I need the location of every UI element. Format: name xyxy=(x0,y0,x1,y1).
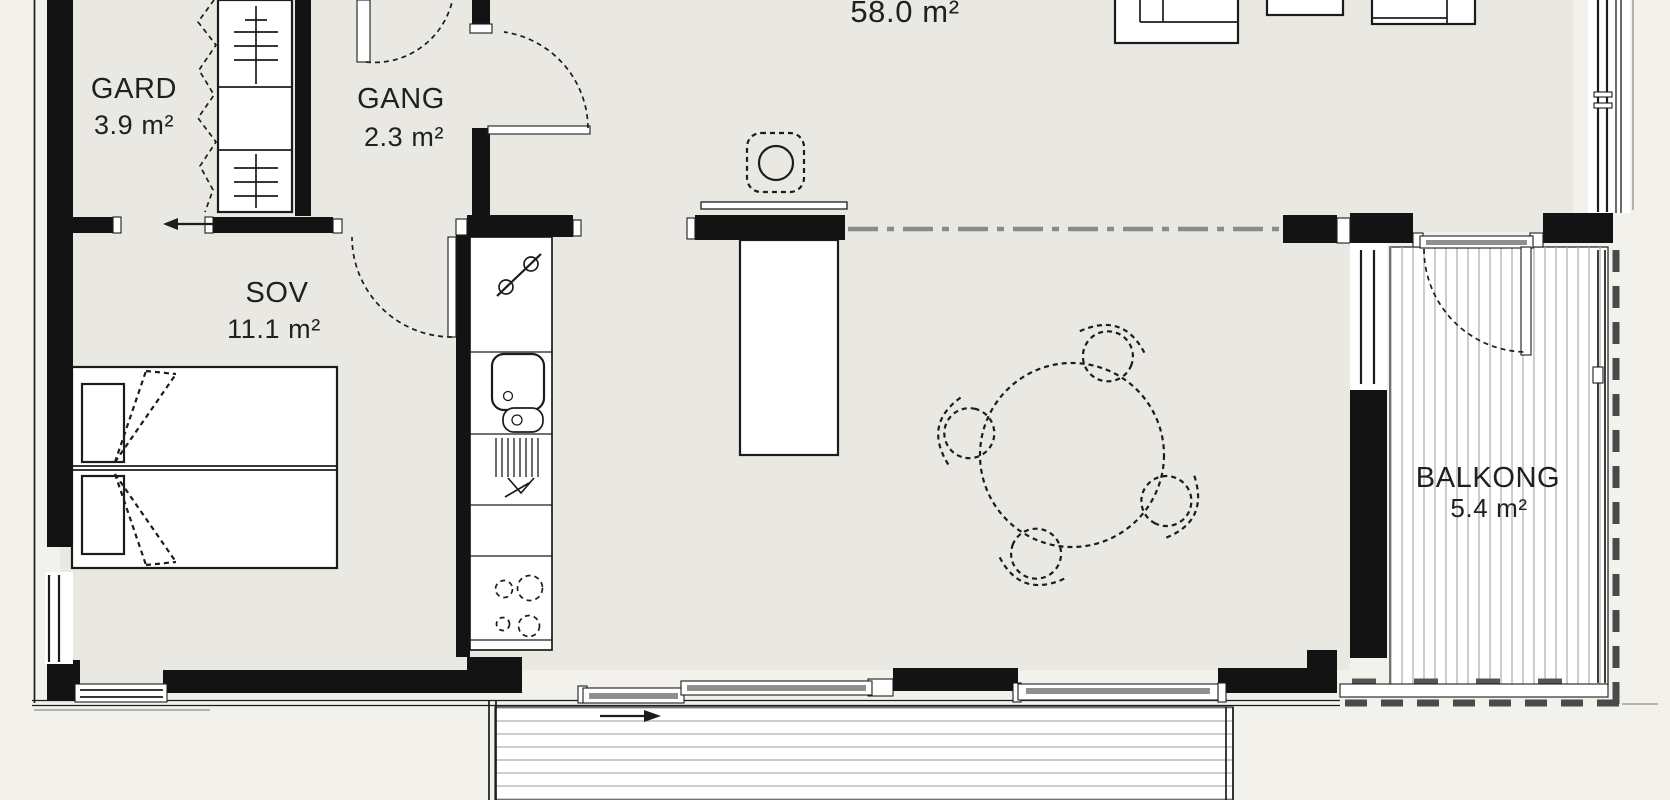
door-leaf xyxy=(448,237,456,337)
floor-plan-canvas: GARD 3.9 m² GANG 2.3 m² SOV 11.1 m² 58.0… xyxy=(0,0,1670,800)
door-jamb xyxy=(470,24,492,33)
balcony-rail-post xyxy=(1593,367,1603,383)
wall xyxy=(1307,650,1337,670)
room-label-sov: SOV xyxy=(245,277,308,309)
room-label-gard: GARD xyxy=(91,73,177,105)
sliding-door-glass xyxy=(589,693,678,699)
wall xyxy=(467,215,573,237)
kitchen-island xyxy=(740,240,838,455)
wall xyxy=(212,217,333,233)
window xyxy=(75,684,167,702)
island-counter-top xyxy=(701,202,847,209)
room-area-sov: 11.1 m² xyxy=(227,314,321,344)
door-jamb xyxy=(113,217,121,233)
armchair xyxy=(1372,0,1475,24)
window-jamb xyxy=(1337,218,1350,243)
wall xyxy=(456,233,470,657)
door-jamb xyxy=(456,219,467,235)
wall xyxy=(1218,668,1337,693)
room-area-balkong: 5.4 m² xyxy=(1450,493,1527,523)
wall xyxy=(295,0,311,216)
room-label-gang: GANG xyxy=(357,83,445,115)
door-jamb xyxy=(687,218,695,239)
balcony-door-glass xyxy=(1426,240,1527,245)
room-area-living: 58.0 m² xyxy=(850,0,959,29)
window xyxy=(1350,243,1387,390)
railing xyxy=(1340,684,1608,697)
pillow xyxy=(82,476,124,554)
room-label-balkong: BALKONG xyxy=(1416,462,1560,494)
wall xyxy=(47,0,73,547)
window xyxy=(1013,683,1226,702)
window xyxy=(45,572,73,664)
wall xyxy=(1350,213,1413,243)
window xyxy=(1588,0,1630,213)
window-mullion xyxy=(1594,103,1612,108)
pillow xyxy=(82,384,124,462)
sliding-door-glass xyxy=(687,685,866,691)
door-leaf xyxy=(357,0,370,62)
floor-plan-drawing: GARD 3.9 m² GANG 2.3 m² SOV 11.1 m² 58.0… xyxy=(0,0,1670,800)
wall xyxy=(893,668,1018,691)
wall xyxy=(47,217,120,233)
door-leaf xyxy=(1521,247,1531,355)
door-leaf xyxy=(488,126,590,134)
wall xyxy=(695,215,845,240)
wall xyxy=(163,670,467,693)
wall xyxy=(472,0,490,26)
door-jamb xyxy=(573,220,581,236)
room-floor-kitchen-living xyxy=(460,230,1350,670)
wall xyxy=(1283,215,1337,243)
room-area-gard: 3.9 m² xyxy=(94,110,174,140)
room-area-gang: 2.3 m² xyxy=(364,122,444,152)
window-mullion xyxy=(1594,92,1612,97)
wall xyxy=(1350,386,1387,658)
door-jamb xyxy=(333,219,342,233)
bed xyxy=(72,367,337,568)
kitchen-counter xyxy=(470,237,552,650)
wall xyxy=(1543,213,1613,243)
side-table xyxy=(1267,0,1343,15)
kitchen-counter-run xyxy=(470,237,552,650)
terrace-decking-lines xyxy=(495,707,1233,800)
wall xyxy=(467,657,522,693)
